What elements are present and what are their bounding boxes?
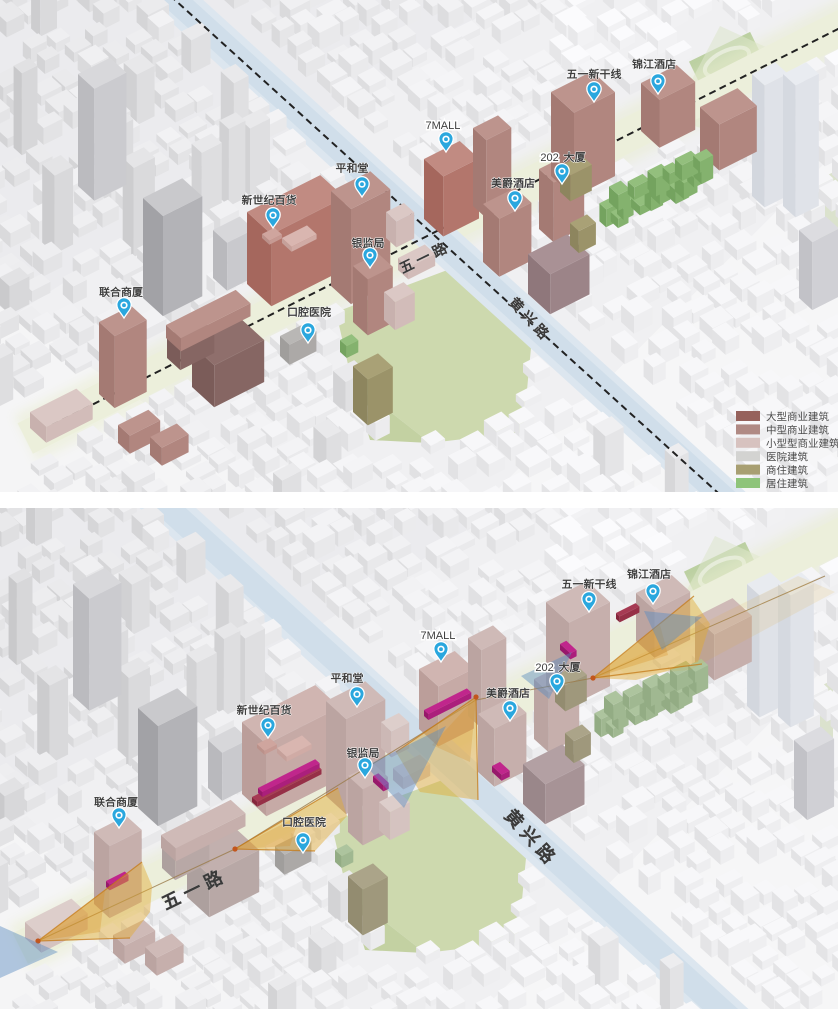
svg-text:202: 202: [535, 662, 553, 674]
svg-text:7MALL: 7MALL: [421, 630, 456, 642]
svg-text:202: 202: [540, 152, 558, 164]
svg-text:7MALL: 7MALL: [426, 120, 461, 132]
